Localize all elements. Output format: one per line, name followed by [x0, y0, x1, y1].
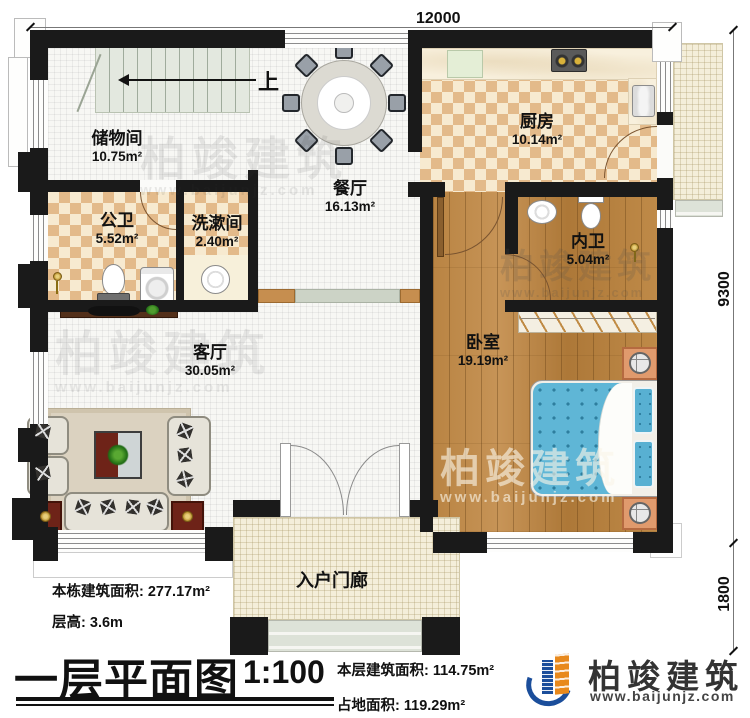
pillow-left-2: [35, 465, 51, 481]
floor-drain-public-bath: [53, 272, 62, 281]
wall-bath-divider: [176, 192, 184, 302]
label-storage: 储物间 10.75m²: [92, 129, 143, 165]
dimension-top-value: 12000: [416, 10, 461, 28]
dining-chair-3: [388, 94, 406, 112]
label-ensuite-area: 5.04m²: [567, 252, 610, 268]
pillow-right-2: [177, 447, 193, 463]
floor-height-label: 层高:: [52, 615, 86, 631]
bed-pillow-bottom: [633, 440, 654, 488]
kitchen-sink: [632, 85, 655, 117]
exterior-planter-left: [8, 57, 28, 167]
building-area-row: 本栋建筑面积: 277.17m²: [52, 580, 210, 601]
label-living-name: 客厅: [185, 343, 235, 363]
window-left-living: [30, 352, 48, 424]
floor-area-label: 本层建筑面积:: [337, 663, 429, 679]
wardrobe-rod: [520, 318, 655, 319]
fridge: [447, 50, 483, 78]
label-kitchen-area: 10.14m²: [512, 132, 562, 148]
building-area-value: 277.17m²: [148, 584, 210, 600]
wall-pier-left-3: [18, 428, 30, 462]
bed-pillow-top: [633, 387, 654, 434]
footprint-label: 占地面积:: [337, 698, 400, 714]
label-washroom-area: 2.40m²: [192, 234, 243, 250]
floor-height-value: 3.6m: [90, 615, 123, 631]
label-storage-area: 10.75m²: [92, 149, 143, 165]
porch-floor: [233, 517, 460, 620]
label-porch: 入户门廊: [296, 570, 368, 591]
threshold-track: [295, 289, 400, 303]
plan-scale: 1:100: [243, 654, 325, 691]
dimension-right-upper-value: 9300: [716, 264, 734, 314]
label-dining: 餐厅 16.13m²: [325, 179, 375, 215]
footprint-value: 119.29m²: [404, 698, 465, 714]
tv-set: [88, 306, 140, 316]
staircase-up-label: 上: [258, 66, 279, 96]
footprint-row: 占地面积: 119.29m²: [337, 694, 465, 715]
pillow-bottom-3: [125, 499, 141, 515]
label-ensuite: 内卫 5.04m²: [567, 232, 610, 268]
washing-machine: [140, 267, 174, 304]
window-left-bath: [30, 215, 48, 261]
label-washroom-name: 洗漱间: [192, 214, 243, 234]
label-washroom: 洗漱间 2.40m²: [192, 214, 243, 250]
label-living-area: 30.05m²: [185, 363, 235, 379]
threshold-wood-right: [400, 289, 420, 303]
floor-plan-canvas: 上: [0, 0, 750, 718]
label-bedroom-name: 卧室: [458, 333, 508, 353]
floor-area-value: 114.75m²: [433, 663, 494, 679]
wall-living-bottom-right: [205, 527, 233, 561]
staircase-direction-line: [128, 79, 256, 81]
label-kitchen-name: 厨房: [512, 112, 562, 132]
dining-chair-7: [282, 94, 300, 112]
label-dining-name: 餐厅: [325, 179, 375, 199]
porch-column-right: [422, 617, 460, 655]
nightstand-lamp-bottom: [629, 502, 651, 524]
tv-plant: [146, 305, 159, 315]
wall-ensuite-bottom: [505, 300, 657, 312]
end-table-left-medallion: [40, 511, 51, 522]
window-left-storage: [30, 80, 48, 148]
wall-kitchen-bottom-right: [505, 182, 657, 197]
washroom-sink: [201, 265, 230, 294]
wall-bath-right: [248, 170, 258, 312]
entry-door-leaf-left: [280, 443, 291, 517]
wall-kitchen-dining-divider: [408, 30, 422, 152]
building-area-label: 本栋建筑面积:: [52, 584, 144, 600]
wall-pier-left-1: [18, 152, 30, 192]
toilet-ensuite-bowl: [581, 203, 601, 229]
drain-stem-public-bath: [56, 281, 58, 294]
stove: [551, 49, 587, 72]
window-bedroom-bottom: [487, 535, 633, 552]
toilet-public-bath: [102, 264, 125, 295]
label-porch-name: 入户门廊: [296, 570, 368, 591]
window-top: [285, 30, 408, 48]
label-kitchen: 厨房 10.14m²: [512, 112, 562, 148]
wall-porch-left-jamb: [233, 500, 280, 517]
brand-site: www.baijunjz.com: [590, 688, 735, 704]
label-living: 客厅 30.05m²: [185, 343, 235, 379]
wall-bedroom-left: [420, 192, 433, 532]
dining-table-center: [334, 93, 354, 113]
floor-height-row: 层高: 3.6m: [52, 611, 123, 632]
label-public-bath: 公卫 5.52m²: [96, 211, 139, 247]
wall-bottomleft-step: [12, 498, 33, 540]
wall-pier-left-2: [18, 264, 30, 308]
wall-bath-bottom: [30, 300, 258, 312]
window-kitchen-right: [657, 62, 673, 112]
label-bedroom: 卧室 19.19m²: [458, 333, 508, 369]
window-living-bottom: [58, 530, 205, 552]
end-table-right-medallion: [182, 511, 193, 522]
coffee-table-plant: [107, 444, 129, 466]
floor-drain-ensuite: [630, 243, 639, 252]
wall-ensuite-left: [505, 192, 518, 254]
threshold-wood-left: [258, 289, 295, 303]
label-dining-area: 16.13m²: [325, 199, 375, 215]
dimension-right-lower-value: 1800: [716, 569, 734, 619]
title-underline-thick: [16, 697, 334, 701]
wall-bedroom-bottom-left: [433, 532, 487, 553]
staircase-direction-arrowhead: [118, 74, 129, 86]
title-underline-thin: [16, 704, 334, 706]
ensuite-sink: [527, 200, 557, 224]
label-public-bath-area: 5.52m²: [96, 231, 139, 247]
public-bath-door-gap: [140, 180, 176, 192]
drain-stem-ensuite: [634, 252, 636, 262]
pillow-left-1: [35, 423, 52, 440]
wall-bedroom-bottom-right: [633, 532, 673, 553]
exterior-patio-outline: [33, 552, 233, 578]
dimension-line-right: [733, 30, 734, 652]
bedroom-door-leaf: [437, 197, 444, 257]
wall-living-bottom-left: [33, 527, 58, 561]
dining-chair-5: [335, 147, 353, 165]
exterior-corner-box-topright: [652, 22, 682, 62]
window-ensuite-right: [657, 210, 673, 228]
brand-logo-building-blue-icon: [542, 660, 553, 694]
floor-area-row: 本层建筑面积: 114.75m²: [337, 659, 494, 680]
brand-logo-building-orange-icon: [555, 653, 569, 694]
entry-door-leaf-right: [399, 443, 410, 517]
wall-bath-top-left: [30, 180, 140, 192]
terrace-steps: [675, 200, 723, 217]
label-storage-name: 储物间: [92, 129, 143, 149]
door-gap-kitchen: [657, 125, 673, 178]
wall-bath-top-right: [176, 180, 258, 192]
porch-steps: [268, 620, 422, 652]
label-ensuite-name: 内卫: [567, 232, 610, 252]
brand-logo: 柏竣建筑 www.baijunjz.com: [524, 648, 744, 712]
label-bedroom-area: 19.19m²: [458, 353, 508, 369]
label-public-bath-name: 公卫: [96, 211, 139, 231]
nightstand-lamp-top: [629, 352, 651, 374]
terrace-floor: [673, 43, 723, 200]
dimension-line-top: [30, 27, 673, 28]
